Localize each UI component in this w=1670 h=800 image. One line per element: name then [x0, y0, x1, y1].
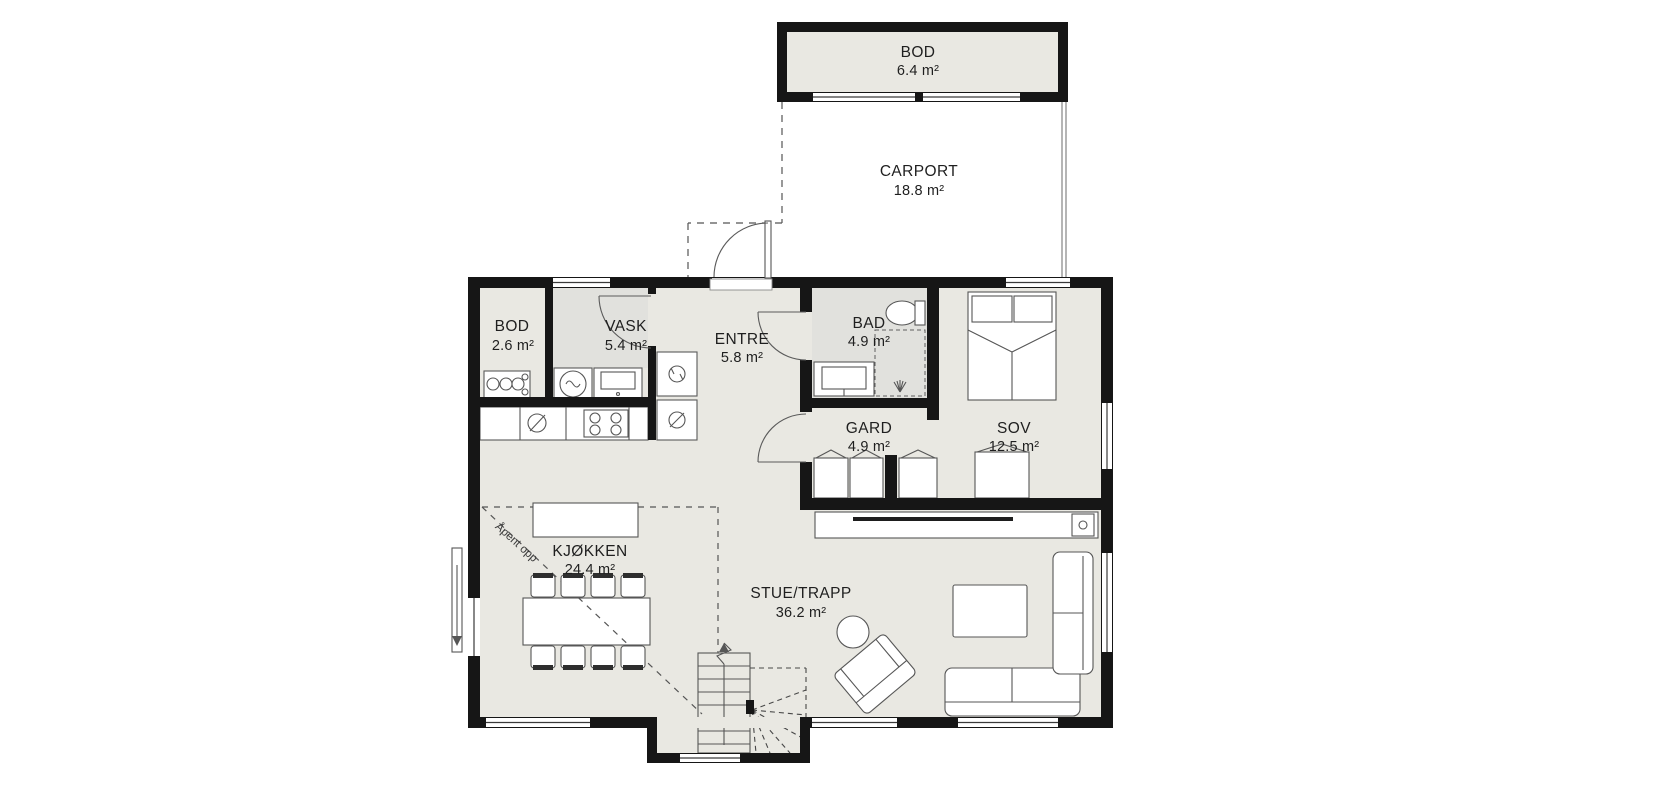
svg-text:4.9 m²: 4.9 m² [848, 334, 890, 350]
utility-fixture [484, 371, 530, 398]
window [958, 718, 1058, 727]
carport-boundary [688, 102, 1066, 277]
window [1102, 553, 1112, 652]
dining-table [523, 598, 650, 645]
svg-text:STUE/TRAPP: STUE/TRAPP [750, 585, 851, 602]
tv-bench [815, 512, 1098, 538]
side-table [837, 616, 869, 648]
laundry-fixtures [554, 368, 642, 400]
storage-door-opening [923, 93, 1020, 101]
svg-text:CARPORT: CARPORT [880, 163, 958, 180]
svg-text:BOD: BOD [495, 318, 530, 335]
window [1006, 278, 1070, 287]
storage-door-opening [813, 93, 915, 101]
kitchen-counter [480, 407, 648, 440]
svg-text:36.2 m²: 36.2 m² [776, 605, 827, 621]
window [680, 754, 740, 762]
vanity-sink-icon [814, 362, 874, 396]
svg-text:KJØKKEN: KJØKKEN [552, 543, 627, 560]
room-label-carport: CARPORT 18.8 m² [880, 163, 958, 199]
sofa-bottom [945, 668, 1080, 716]
floorplan-page: BOD 6.4 m² CARPORT 18.8 m² BOD 2.6 m² VA… [0, 0, 1670, 800]
svg-text:12.5 m²: 12.5 m² [989, 439, 1040, 455]
window [812, 718, 897, 727]
svg-text:SOV: SOV [997, 420, 1031, 437]
svg-text:BAD: BAD [852, 315, 885, 332]
svg-text:18.8 m²: 18.8 m² [894, 183, 945, 199]
svg-text:24.4 m²: 24.4 m² [565, 562, 616, 578]
svg-text:2.6 m²: 2.6 m² [492, 338, 534, 354]
window [1102, 403, 1112, 469]
svg-text:5.8 m²: 5.8 m² [721, 350, 763, 366]
toilet-icon [886, 301, 925, 325]
tall-cabinets [657, 352, 697, 440]
svg-text:VASK: VASK [605, 318, 647, 335]
svg-text:6.4 m²: 6.4 m² [897, 63, 939, 79]
sofa-right [1053, 552, 1093, 674]
svg-text:BOD: BOD [901, 44, 936, 61]
svg-text:GARD: GARD [846, 420, 892, 437]
kitchen-island [533, 503, 638, 537]
window [486, 718, 590, 727]
window [553, 278, 610, 287]
svg-text:ENTRE: ENTRE [715, 331, 770, 348]
svg-text:5.4 m²: 5.4 m² [605, 338, 647, 354]
coffee-table [953, 585, 1027, 637]
floorplan-drawing: BOD 6.4 m² CARPORT 18.8 m² BOD 2.6 m² VA… [0, 0, 1670, 800]
double-bed [968, 292, 1056, 400]
entry-door [710, 221, 772, 290]
svg-text:4.9 m²: 4.9 m² [848, 439, 890, 455]
